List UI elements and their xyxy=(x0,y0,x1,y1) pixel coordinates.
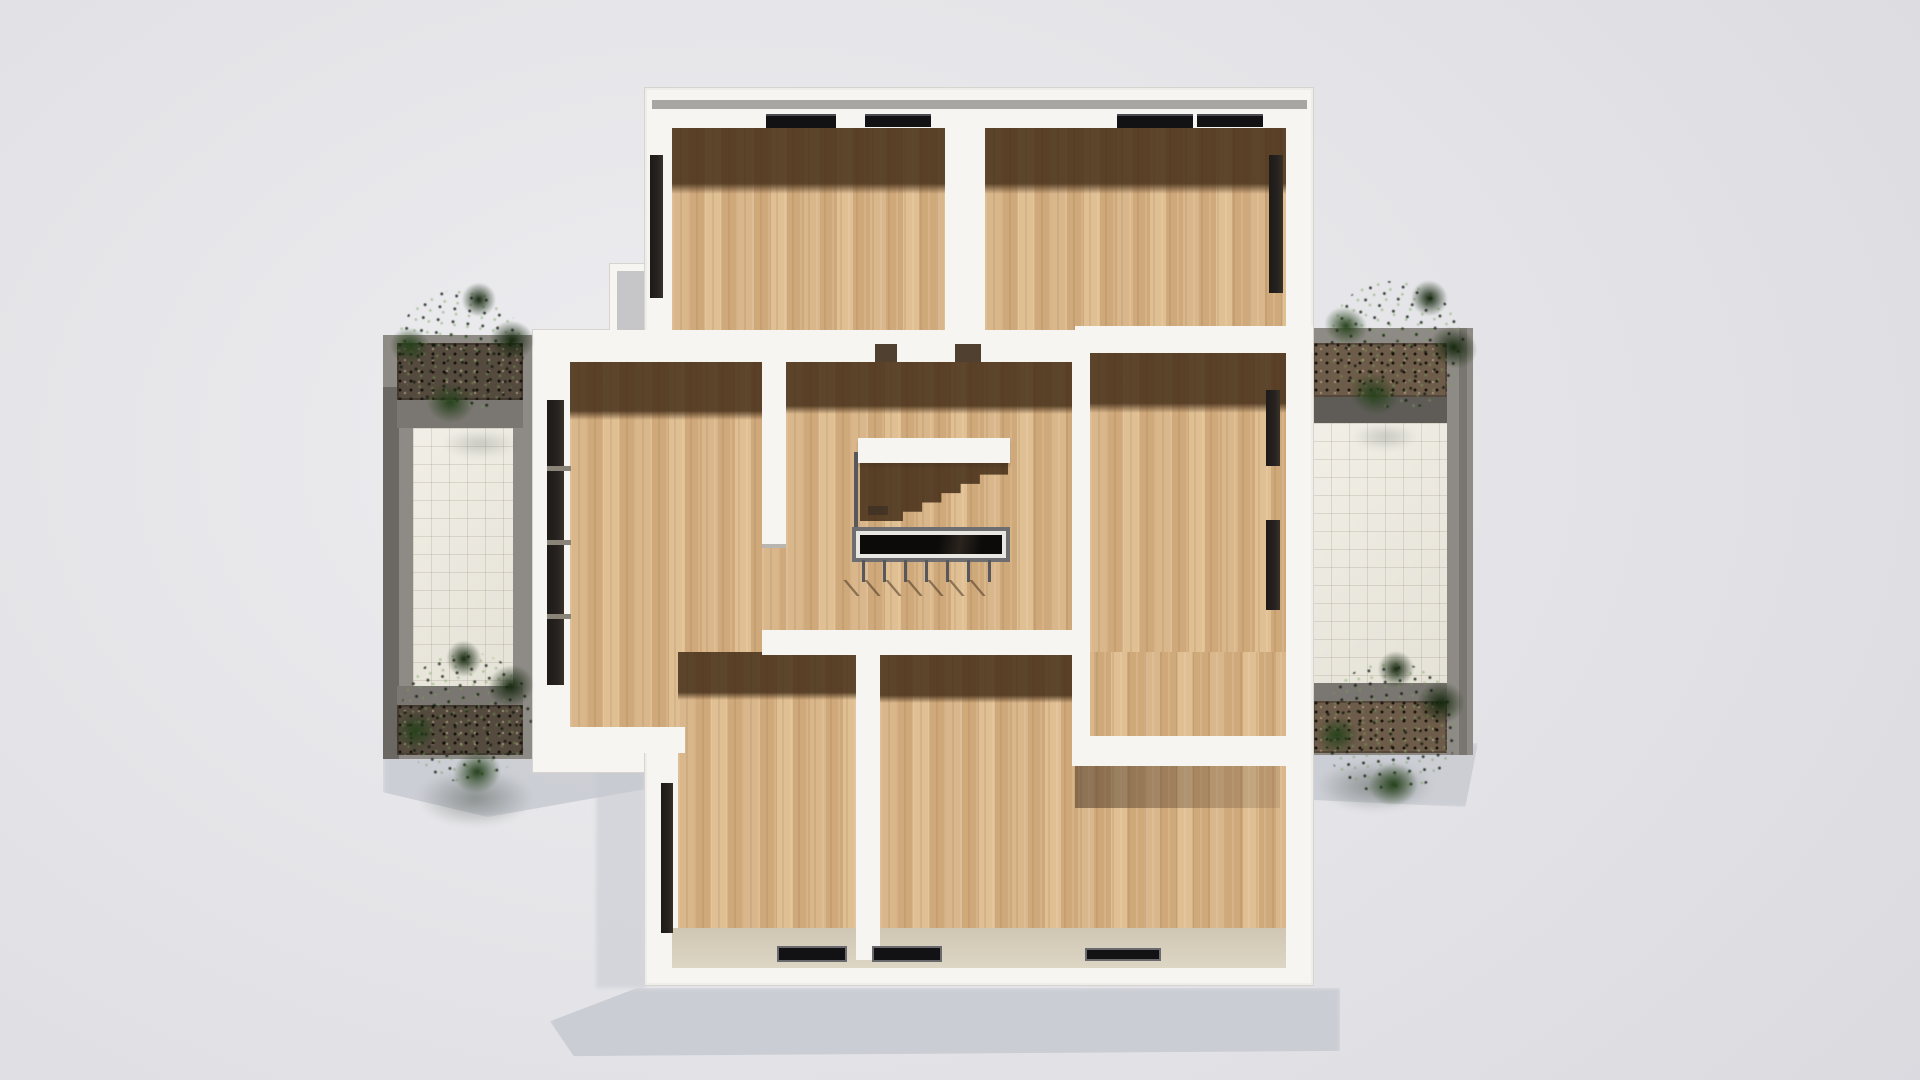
window-south xyxy=(1085,948,1161,961)
room-shadow-band xyxy=(880,655,1075,703)
railing-baluster xyxy=(883,560,886,582)
building-side-shadow xyxy=(596,768,646,988)
door-east-middle xyxy=(1266,520,1280,610)
window-north xyxy=(865,114,931,127)
wall-stair-hall-west xyxy=(762,362,786,548)
room-shadow-band xyxy=(672,128,945,194)
railing-baluster xyxy=(862,560,865,582)
wall-stair-hall-south xyxy=(762,630,1075,655)
room-shadow-band xyxy=(985,128,1286,194)
door-west-top xyxy=(650,155,663,298)
glazing-bar xyxy=(547,466,571,471)
room-shadow-band xyxy=(786,362,1072,414)
wall-stub-south-east xyxy=(1072,736,1286,766)
window-north xyxy=(1117,114,1193,128)
wall-middle-left-south xyxy=(533,727,685,753)
railing-baluster xyxy=(946,560,949,582)
railing-baluster xyxy=(988,560,991,582)
wall-bottom-divider xyxy=(856,652,880,960)
doorway-notch xyxy=(875,344,897,362)
glazed-door-west xyxy=(547,400,564,685)
stairwell-opening xyxy=(860,535,1002,554)
window-south xyxy=(872,946,942,962)
doorway-notch xyxy=(955,344,981,362)
wall-stub-shadow xyxy=(1075,766,1280,808)
room-shadow-band xyxy=(1090,352,1286,413)
room-shadow-band xyxy=(570,362,762,420)
wall-stair-hall-east xyxy=(1072,353,1090,738)
railing-baluster xyxy=(925,560,928,582)
glazing-bar xyxy=(547,540,571,545)
door-west-bottom xyxy=(661,783,673,933)
stairwell-upper-wall xyxy=(858,438,1010,463)
glazing-bar xyxy=(547,614,571,619)
railing-baluster xyxy=(967,560,970,582)
wall-top-horizontal xyxy=(533,330,1075,362)
doorway-floor-gap xyxy=(762,548,786,630)
room-shadow-band xyxy=(678,652,856,700)
south-wall-inner-face xyxy=(672,928,1286,968)
roof-coping-line xyxy=(652,100,1307,109)
door-east-top xyxy=(1269,155,1283,293)
render-canvas xyxy=(0,0,1920,1080)
building-ground-shadow xyxy=(550,988,1340,1062)
wall-top-horizontal-east xyxy=(1075,326,1313,353)
window-north xyxy=(1197,114,1263,127)
terrace-tile-floor xyxy=(1313,423,1447,683)
window-south xyxy=(777,946,847,962)
door-east-middle xyxy=(1266,390,1280,466)
stair-landing-edge xyxy=(868,506,888,515)
window-north xyxy=(766,114,836,128)
railing-baluster xyxy=(904,560,907,582)
